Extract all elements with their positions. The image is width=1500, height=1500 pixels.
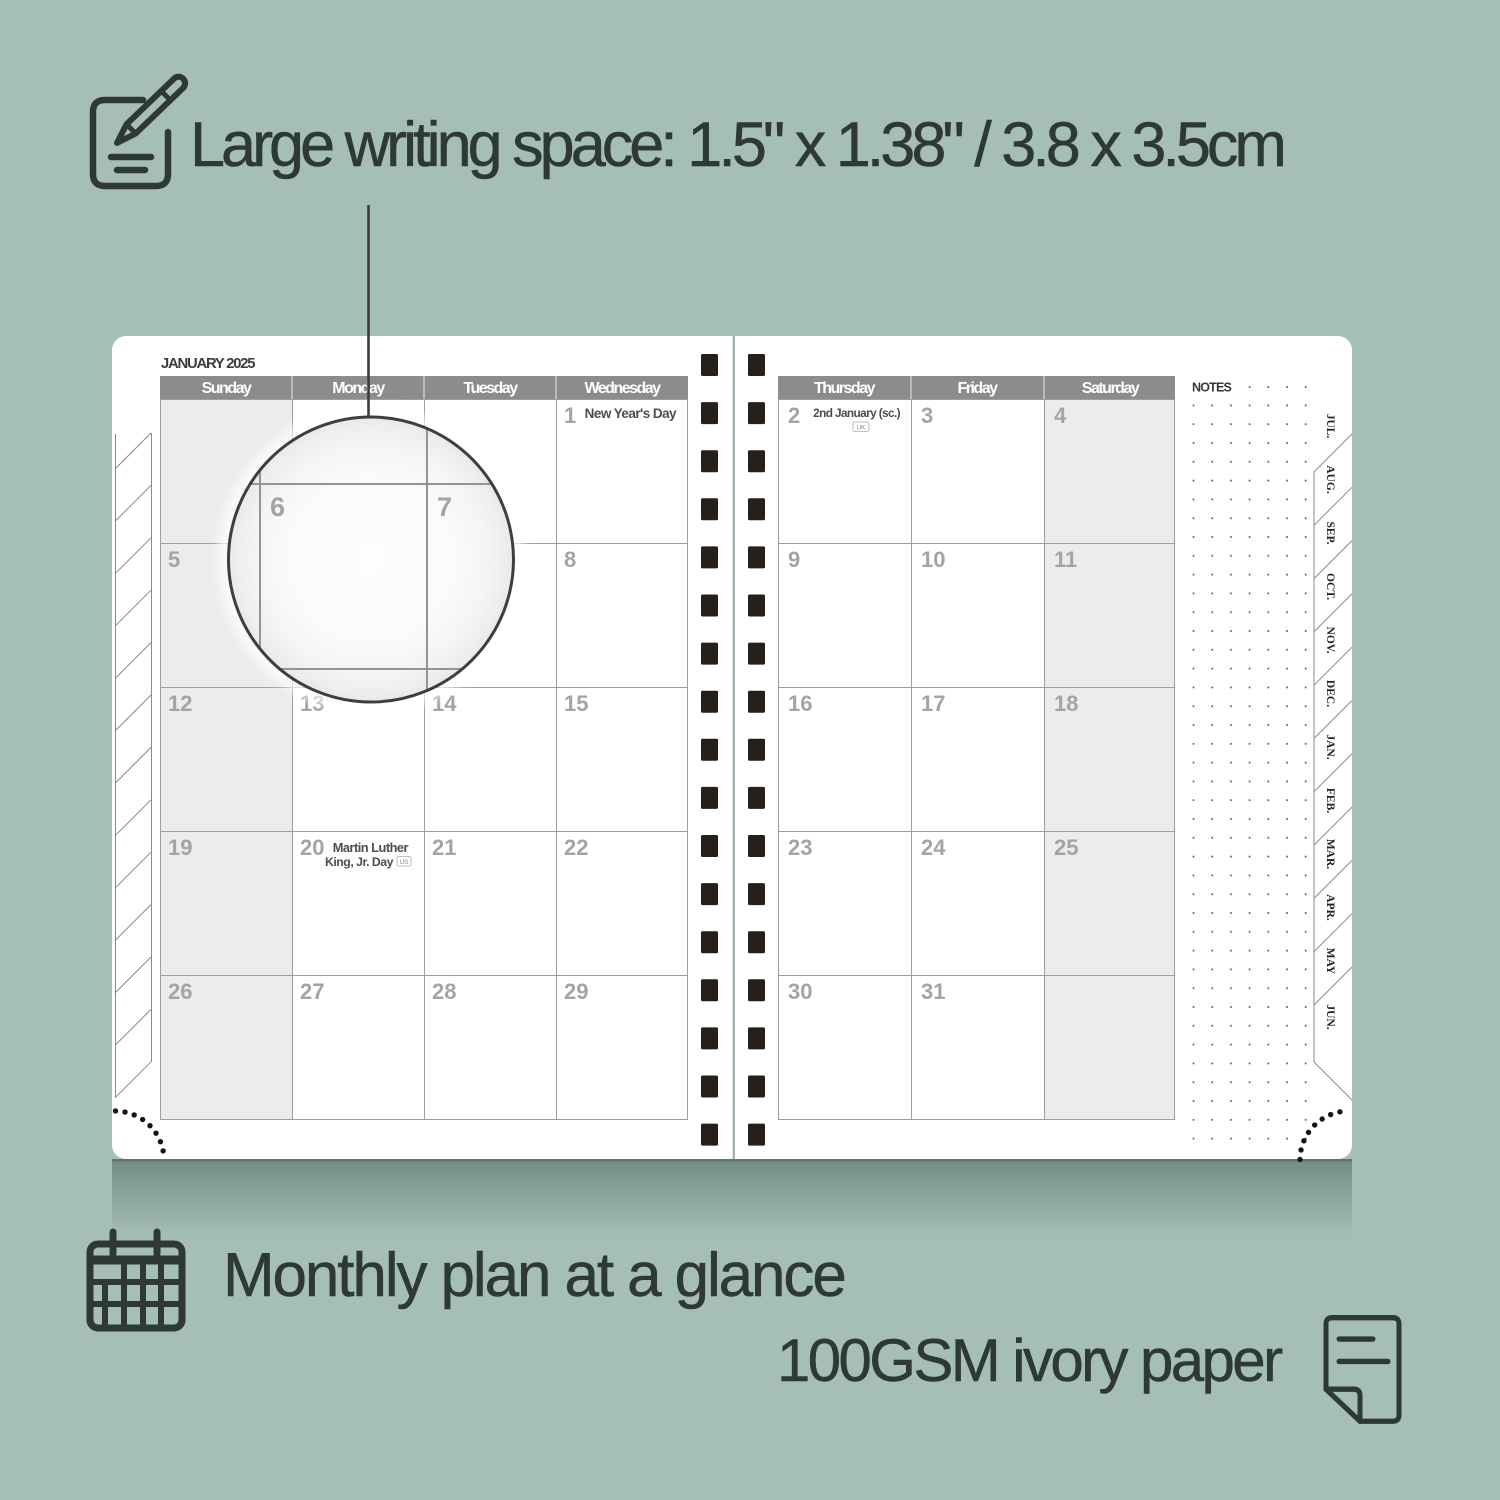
svg-text:21: 21: [432, 835, 456, 860]
svg-text:Thursday: Thursday: [814, 380, 876, 397]
svg-text:4: 4: [1054, 403, 1067, 428]
svg-text:5: 5: [168, 547, 180, 572]
svg-text:JAN.: JAN.: [1324, 734, 1336, 759]
svg-text:Friday: Friday: [957, 380, 998, 397]
svg-text:10: 10: [921, 547, 945, 572]
svg-text:8: 8: [564, 547, 576, 572]
svg-text:27: 27: [300, 979, 324, 1004]
svg-text:3: 3: [921, 403, 933, 428]
svg-text:JUN.: JUN.: [1324, 1004, 1336, 1029]
svg-text:9: 9: [788, 547, 800, 572]
svg-text:1: 1: [564, 403, 576, 428]
svg-text:2nd January (sc.): 2nd January (sc.): [813, 406, 901, 420]
svg-text:New Year's Day: New Year's Day: [585, 406, 677, 421]
svg-text:UK: UK: [856, 424, 866, 431]
svg-text:2: 2: [788, 403, 800, 428]
svg-text:12: 12: [168, 691, 192, 716]
svg-text:22: 22: [564, 835, 588, 860]
svg-text:25: 25: [1054, 835, 1078, 860]
svg-text:31: 31: [921, 979, 945, 1004]
svg-text:7: 7: [437, 492, 452, 522]
svg-text:OCT.: OCT.: [1324, 573, 1336, 600]
svg-text:Martin Luther: Martin Luther: [333, 840, 409, 855]
svg-text:15: 15: [564, 691, 588, 716]
svg-text:NOV.: NOV.: [1324, 627, 1336, 654]
svg-text:FEB.: FEB.: [1324, 788, 1336, 813]
svg-text:17: 17: [921, 691, 945, 716]
svg-text:Monday: Monday: [332, 380, 385, 397]
svg-text:28: 28: [432, 979, 456, 1004]
svg-text:24: 24: [921, 835, 946, 860]
svg-text:20: 20: [300, 835, 324, 860]
svg-text:APR.: APR.: [1324, 894, 1336, 921]
svg-text:JANUARY 2025: JANUARY 2025: [161, 356, 255, 372]
svg-text:Tuesday: Tuesday: [463, 380, 518, 397]
svg-text:AUG.: AUG.: [1324, 465, 1336, 494]
svg-text:Saturday: Saturday: [1082, 380, 1140, 397]
svg-text:King, Jr. Day: King, Jr. Day: [325, 855, 394, 869]
svg-text:30: 30: [788, 979, 812, 1004]
svg-text:11: 11: [1054, 547, 1077, 572]
svg-text:19: 19: [168, 835, 192, 860]
svg-text:26: 26: [168, 979, 192, 1004]
svg-text:JUL.: JUL.: [1324, 414, 1336, 439]
svg-text:Sunday: Sunday: [202, 380, 252, 397]
svg-text:US: US: [399, 859, 409, 866]
svg-text:MAY: MAY: [1324, 948, 1336, 975]
svg-text:23: 23: [788, 835, 812, 860]
svg-text:SEP.: SEP.: [1324, 522, 1336, 545]
svg-text:29: 29: [564, 979, 588, 1004]
svg-text:NOTES: NOTES: [1192, 381, 1232, 395]
svg-text:16: 16: [788, 691, 812, 716]
svg-text:DEC.: DEC.: [1324, 680, 1336, 707]
svg-text:6: 6: [270, 492, 285, 522]
svg-text:18: 18: [1054, 691, 1078, 716]
svg-text:MAR.: MAR.: [1324, 839, 1336, 869]
svg-text:Wednesday: Wednesday: [584, 380, 661, 397]
